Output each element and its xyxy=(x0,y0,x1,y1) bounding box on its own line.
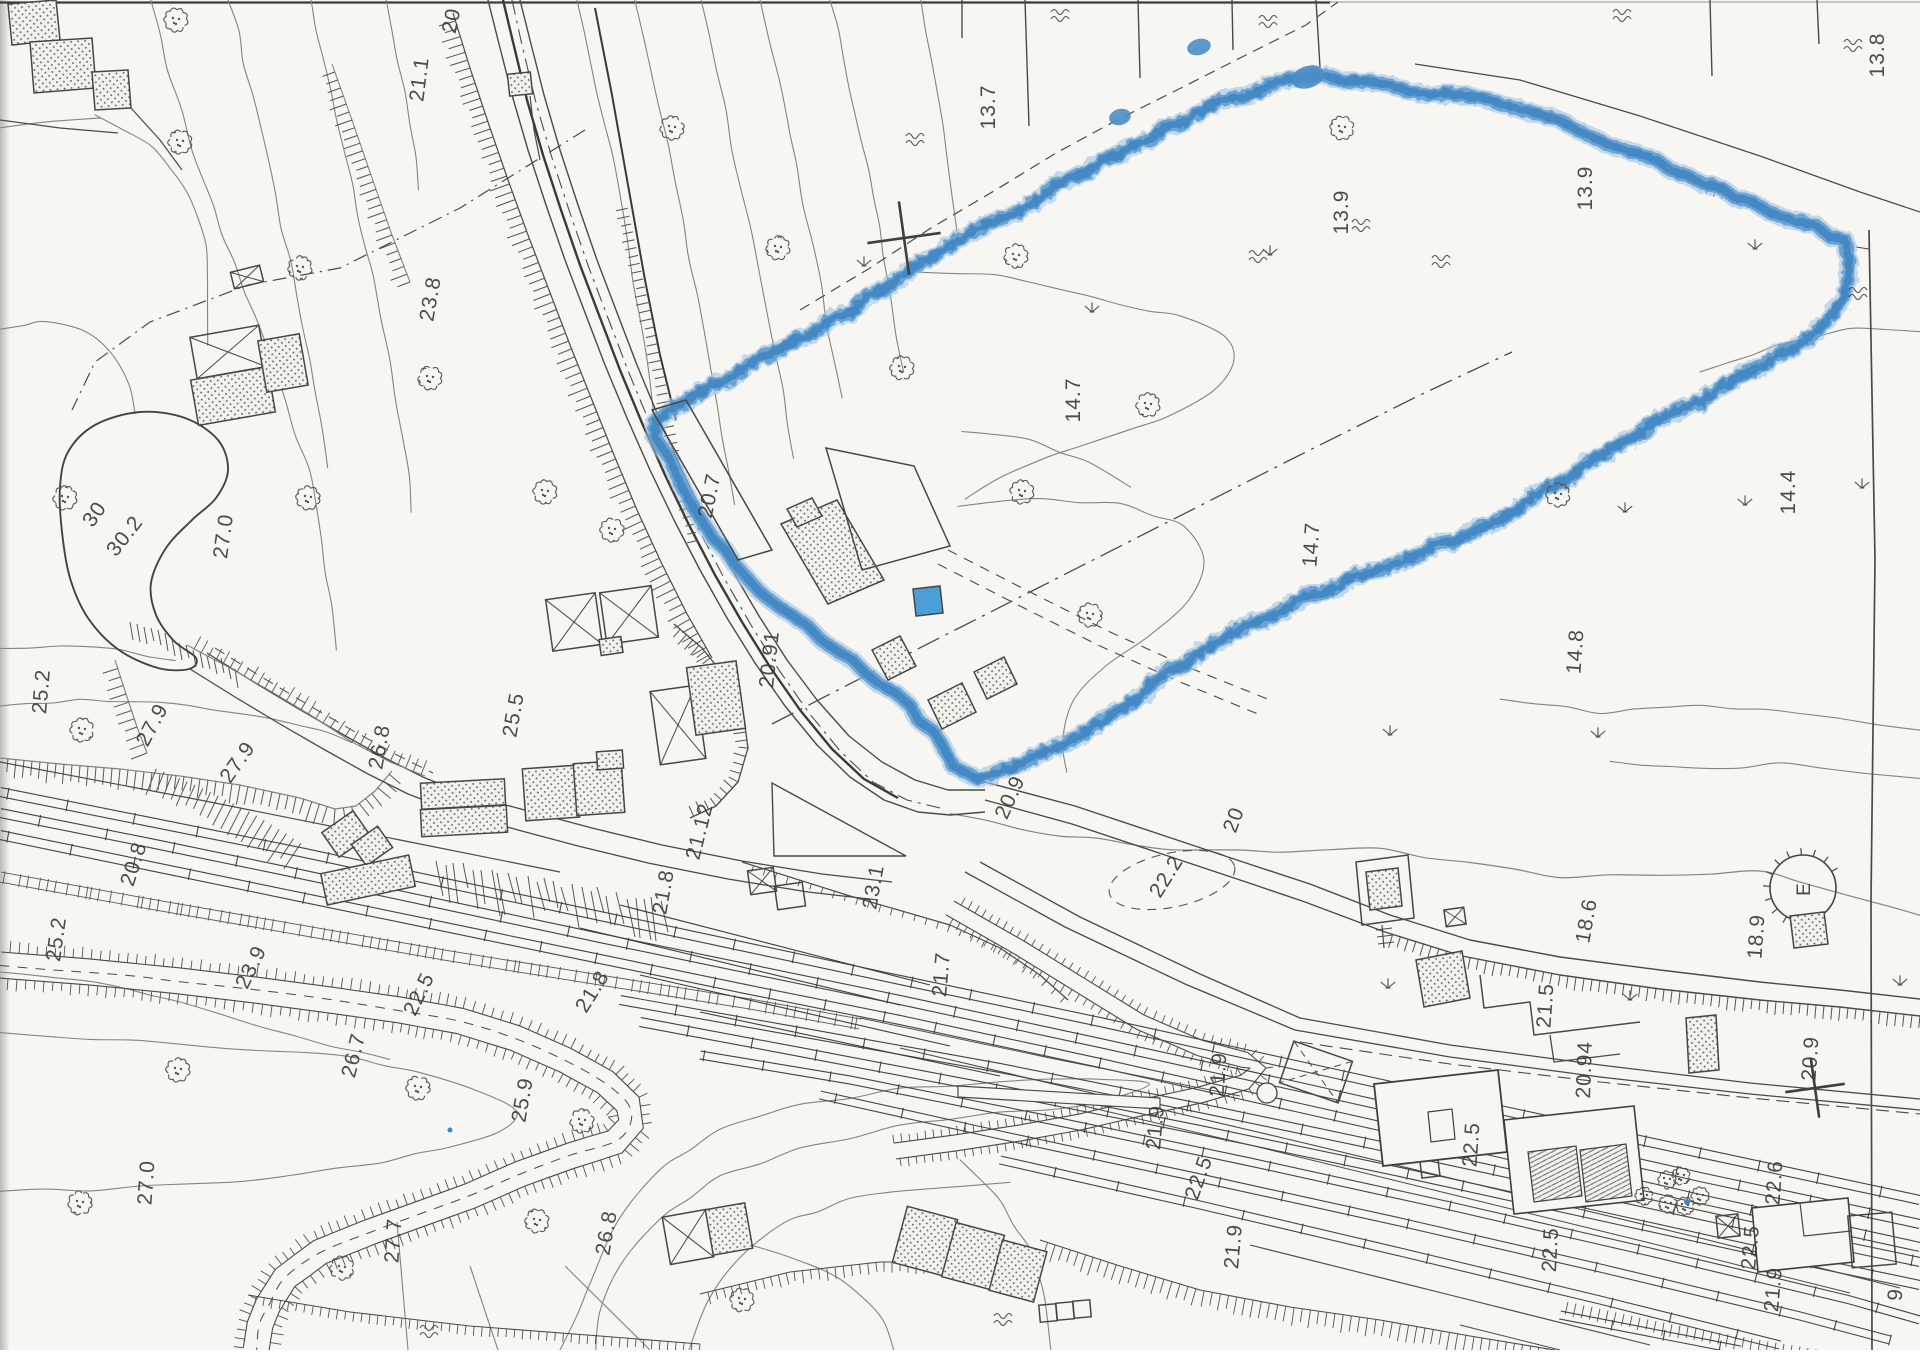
svg-text:27.7: 27.7 xyxy=(380,1217,406,1263)
svg-text:21.9: 21.9 xyxy=(1205,1051,1231,1097)
svg-text:21.9: 21.9 xyxy=(1760,1266,1787,1313)
svg-text:21.7: 21.7 xyxy=(928,951,955,998)
svg-text:20.94: 20.94 xyxy=(1572,1041,1597,1099)
svg-text:13.9: 13.9 xyxy=(1330,190,1353,235)
svg-text:22.5: 22.5 xyxy=(1737,1224,1764,1271)
svg-text:22.5: 22.5 xyxy=(1458,1121,1484,1167)
svg-text:25.2: 25.2 xyxy=(28,668,55,715)
svg-text:13.9: 13.9 xyxy=(1574,166,1597,211)
svg-text:14.4: 14.4 xyxy=(1777,470,1800,515)
svg-text:27.0: 27.0 xyxy=(133,1159,159,1205)
svg-text:21.9: 21.9 xyxy=(1220,1223,1247,1270)
svg-text:22.5: 22.5 xyxy=(1538,1227,1563,1273)
svg-text:20.9: 20.9 xyxy=(1797,1035,1823,1081)
svg-text:21.9: 21.9 xyxy=(1142,1104,1169,1151)
svg-text:21.5: 21.5 xyxy=(1532,982,1558,1028)
svg-text:13.8: 13.8 xyxy=(1866,33,1889,78)
svg-text:9: 9 xyxy=(1884,1287,1908,1302)
svg-text:18.9: 18.9 xyxy=(1743,913,1769,959)
svg-text:14.7: 14.7 xyxy=(1062,378,1085,423)
svg-text:22.6: 22.6 xyxy=(1761,1159,1787,1205)
svg-text:14.8: 14.8 xyxy=(1562,628,1588,674)
svg-text:E: E xyxy=(1794,882,1815,896)
svg-text:13.7: 13.7 xyxy=(977,85,1000,130)
svg-text:14.7: 14.7 xyxy=(1298,521,1324,567)
